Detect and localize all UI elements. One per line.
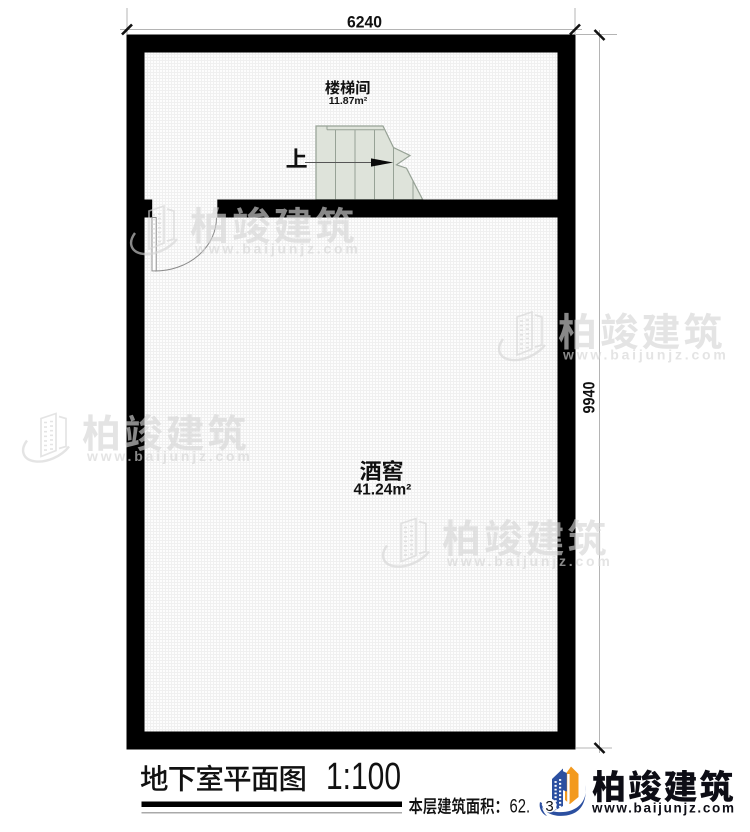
svg-text:11.87m²: 11.87m² <box>329 95 368 107</box>
svg-text:www.baijunjz.com: www.baijunjz.com <box>446 553 613 569</box>
svg-text:6240: 6240 <box>347 14 382 32</box>
svg-text:1:100: 1:100 <box>326 756 401 798</box>
svg-text:9940: 9940 <box>581 382 599 414</box>
svg-text:www.baijunjz.com: www.baijunjz.com <box>86 448 253 464</box>
svg-text:3: 3 <box>545 798 553 815</box>
svg-text:62.: 62. <box>510 796 531 817</box>
svg-text:www.baijunjz.com: www.baijunjz.com <box>562 347 729 363</box>
svg-text:www.baijunjz.com: www.baijunjz.com <box>194 241 361 257</box>
svg-text:www.baijunjz.com: www.baijunjz.com <box>591 801 736 816</box>
svg-text:41.24m²: 41.24m² <box>354 482 412 499</box>
